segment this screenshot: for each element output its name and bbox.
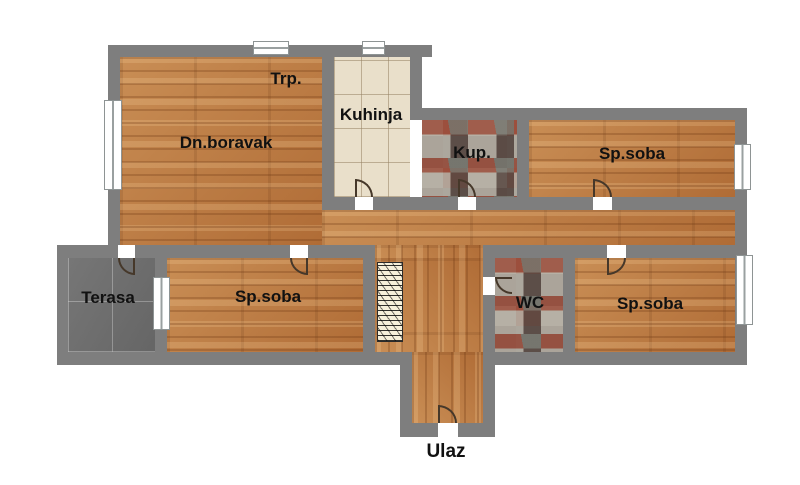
wall-entrance-a xyxy=(400,423,438,437)
room-label-kitchen: Kuhinja xyxy=(340,105,402,125)
door-opening-bedroom-mid xyxy=(290,245,308,258)
window-symbol-trp xyxy=(253,41,289,55)
window-symbol-kitchen xyxy=(362,41,385,55)
floor-plan: Trp. Dn.boravak Kuhinja Kup. Sp.soba Ter… xyxy=(0,0,800,485)
window-symbol-living xyxy=(104,100,122,190)
room-label-trp: Trp. xyxy=(270,69,301,89)
wall-wc-right xyxy=(563,245,575,365)
wall-mid-a xyxy=(322,197,355,210)
room-label-terrace: Terasa xyxy=(81,288,135,308)
door-opening-bathroom xyxy=(458,197,476,210)
wall-mid-c xyxy=(476,197,593,210)
wall-mid-b xyxy=(373,197,458,210)
door-opening-wc xyxy=(483,277,495,295)
room-label-bedroom-right: Sp.soba xyxy=(617,294,683,314)
room-label-wc: WC xyxy=(516,293,544,313)
wall-bathroom-right xyxy=(517,108,529,210)
floor-corridor xyxy=(322,210,735,245)
wall-corridor-d xyxy=(485,245,607,258)
window-symbol-bedroom-right xyxy=(736,255,753,325)
door-opening-bedroom-right xyxy=(607,245,626,258)
door-opening-terrace xyxy=(118,245,135,258)
wall-wc-left-a xyxy=(483,245,495,277)
room-label-bathroom: Kup. xyxy=(453,143,491,163)
floor-hall-opening xyxy=(375,245,485,258)
wall-kitchen-left xyxy=(322,57,334,210)
floor-kitchen xyxy=(334,57,410,197)
door-opening-entrance xyxy=(438,423,458,437)
wall-wc-left-b xyxy=(483,295,495,437)
wall-corridor-e xyxy=(626,245,747,258)
room-label-entrance: Ulaz xyxy=(426,441,465,463)
wardrobe-symbol xyxy=(377,262,403,342)
door-opening-kitchen xyxy=(355,197,373,210)
wall-bottom-left xyxy=(57,352,412,365)
window-symbol-terrace xyxy=(153,277,170,330)
wall-terrace-left xyxy=(57,245,68,365)
wall-top-right xyxy=(410,108,747,120)
wall-mid-d xyxy=(612,197,747,210)
room-label-bedroom-mid: Sp.soba xyxy=(235,287,301,307)
door-opening-bedroom-top xyxy=(593,197,612,210)
room-label-bedroom-top: Sp.soba xyxy=(599,144,665,164)
wall-entrance-b xyxy=(458,423,495,437)
wall-bottom-right xyxy=(483,352,747,365)
window-symbol-bedroom-top xyxy=(734,144,751,190)
wall-bedmid-right xyxy=(363,245,375,352)
room-label-living: Dn.boravak xyxy=(180,133,273,153)
